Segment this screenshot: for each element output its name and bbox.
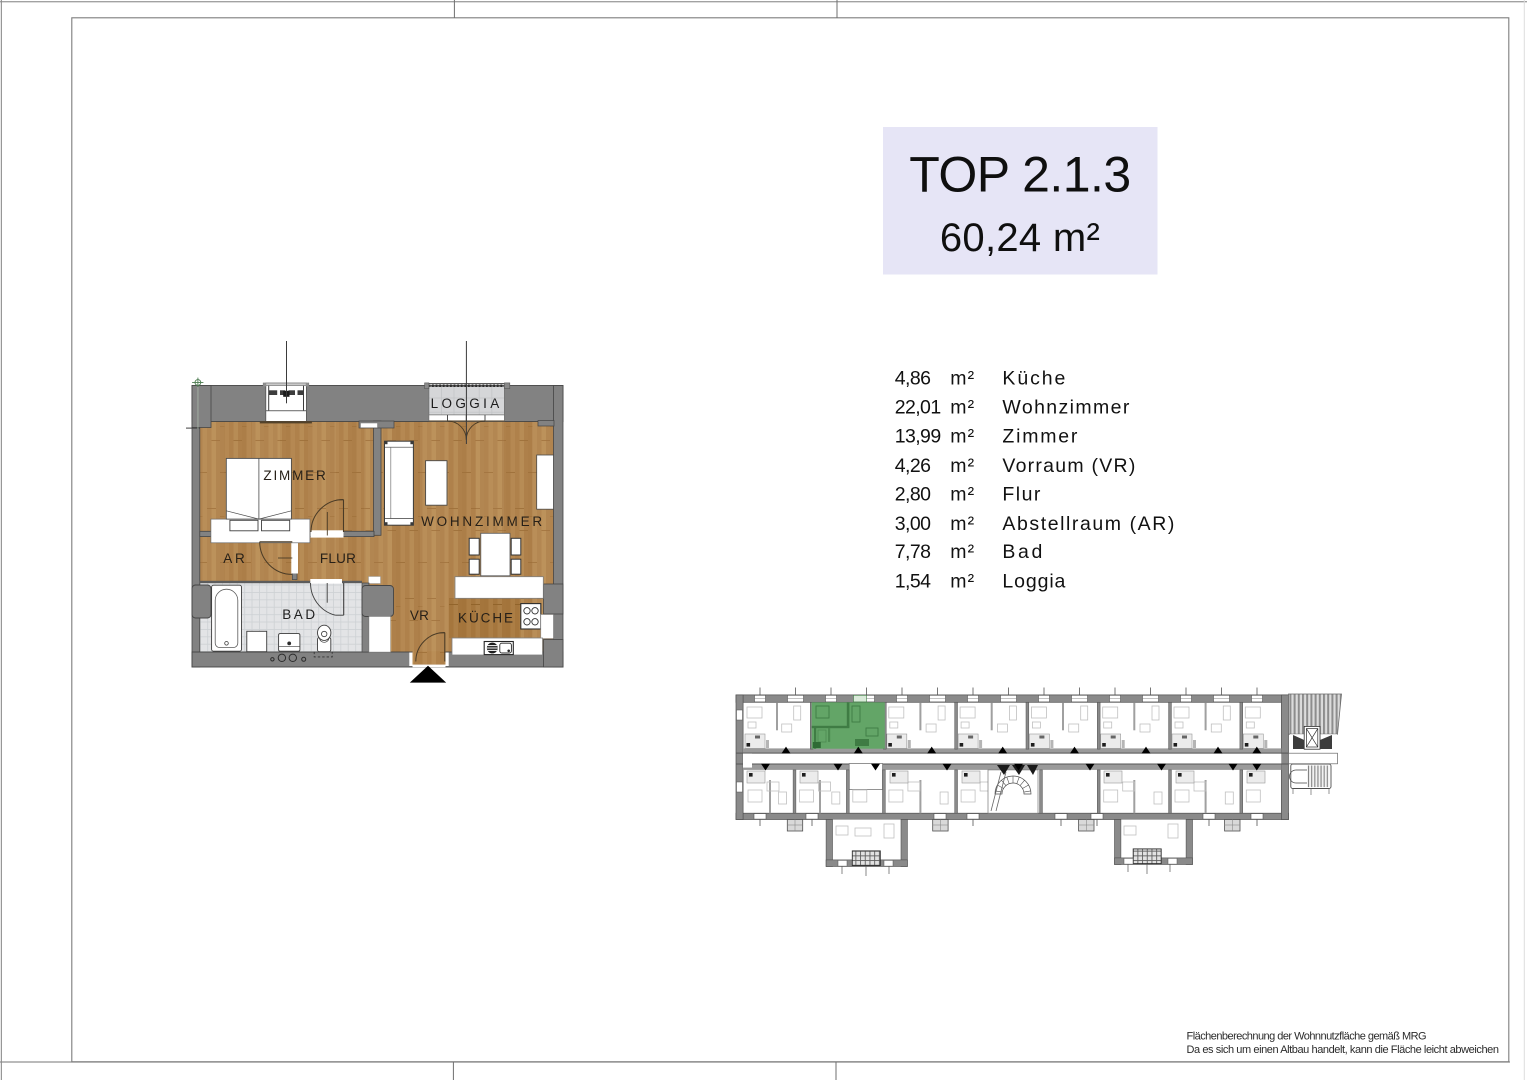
svg-text:m²: m² xyxy=(950,483,975,505)
svg-text:1,54: 1,54 xyxy=(895,571,931,593)
svg-text:Zimmer: Zimmer xyxy=(1002,426,1079,448)
svg-text:13,99: 13,99 xyxy=(895,426,941,448)
svg-text:m²: m² xyxy=(950,571,975,593)
svg-text:60,24 m²: 60,24 m² xyxy=(940,216,1100,260)
svg-text:Loggia: Loggia xyxy=(1002,571,1066,593)
svg-text:Wohnzimmer: Wohnzimmer xyxy=(1002,397,1130,419)
svg-text:Flächenberechnung der Wohnnutz: Flächenberechnung der Wohnnutzfläche gem… xyxy=(1187,1030,1427,1042)
svg-text:m²: m² xyxy=(950,513,975,535)
svg-text:4,26: 4,26 xyxy=(895,455,931,477)
svg-text:m²: m² xyxy=(950,426,975,448)
svg-text:4,86: 4,86 xyxy=(895,368,931,390)
svg-text:m²: m² xyxy=(950,397,975,419)
svg-text:2,80: 2,80 xyxy=(895,483,931,505)
svg-text:3,00: 3,00 xyxy=(895,513,931,535)
svg-text:Abstellraum (AR): Abstellraum (AR) xyxy=(1002,513,1176,535)
svg-text:TOP 2.1.3: TOP 2.1.3 xyxy=(909,147,1130,203)
svg-text:FLUR: FLUR xyxy=(320,551,356,566)
svg-text:Küche: Küche xyxy=(1002,368,1067,390)
svg-text:7,78: 7,78 xyxy=(895,541,931,563)
svg-text:WOHNZIMMER: WOHNZIMMER xyxy=(421,514,545,529)
svg-text:Flur: Flur xyxy=(1002,483,1041,505)
svg-text:m²: m² xyxy=(950,541,975,563)
svg-text:m²: m² xyxy=(950,455,975,477)
svg-text:Vorraum (VR): Vorraum (VR) xyxy=(1002,455,1136,477)
svg-text:Bad: Bad xyxy=(1002,541,1045,563)
svg-text:VR: VR xyxy=(410,608,429,623)
svg-text:m²: m² xyxy=(950,368,975,390)
svg-text:AR: AR xyxy=(223,551,247,566)
svg-text:KÜCHE: KÜCHE xyxy=(458,610,515,625)
svg-text:ZIMMER: ZIMMER xyxy=(263,468,327,483)
svg-text:Da es sich um einen Altbau han: Da es sich um einen Altbau handelt, kann… xyxy=(1187,1044,1499,1056)
svg-text:22,01: 22,01 xyxy=(895,397,941,419)
svg-text:BAD: BAD xyxy=(282,607,318,622)
